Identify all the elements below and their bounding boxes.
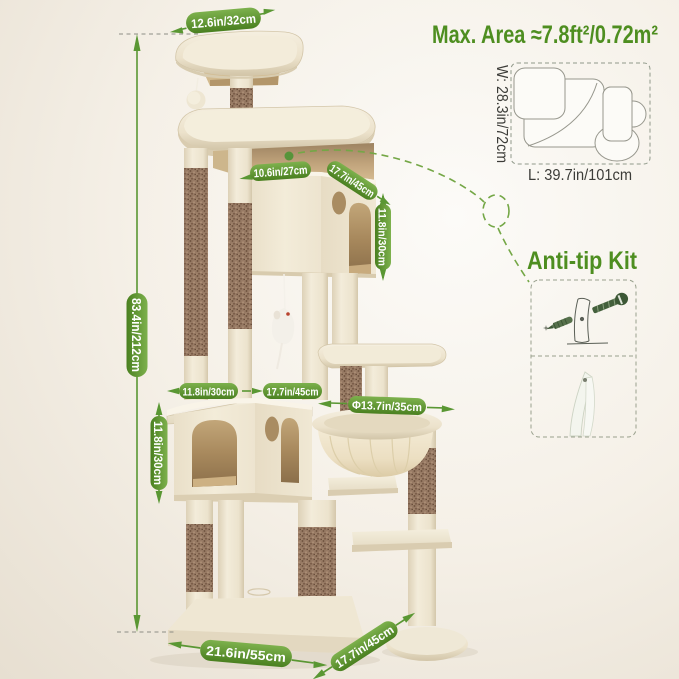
- svg-text:Anti-tip Kit: Anti-tip Kit: [527, 247, 638, 275]
- svg-text:11.8in/30cm: 11.8in/30cm: [151, 421, 163, 485]
- svg-text:11.8in/30cm: 11.8in/30cm: [183, 387, 235, 399]
- svg-text:Φ13.7in/35cm: Φ13.7in/35cm: [352, 400, 422, 414]
- svg-text:11.8in/30cm: 11.8in/30cm: [376, 208, 388, 266]
- svg-text:Max. Area ≈7.8ft²/0.72m²: Max. Area ≈7.8ft²/0.72m²: [432, 21, 658, 49]
- svg-text:17.7in/45cm: 17.7in/45cm: [267, 387, 319, 399]
- svg-text:L: 39.7in/101cm: L: 39.7in/101cm: [528, 167, 632, 184]
- svg-text:W: 28.3in/72cm: W: 28.3in/72cm: [493, 65, 510, 163]
- svg-text:83.4in/212cm: 83.4in/212cm: [129, 298, 143, 372]
